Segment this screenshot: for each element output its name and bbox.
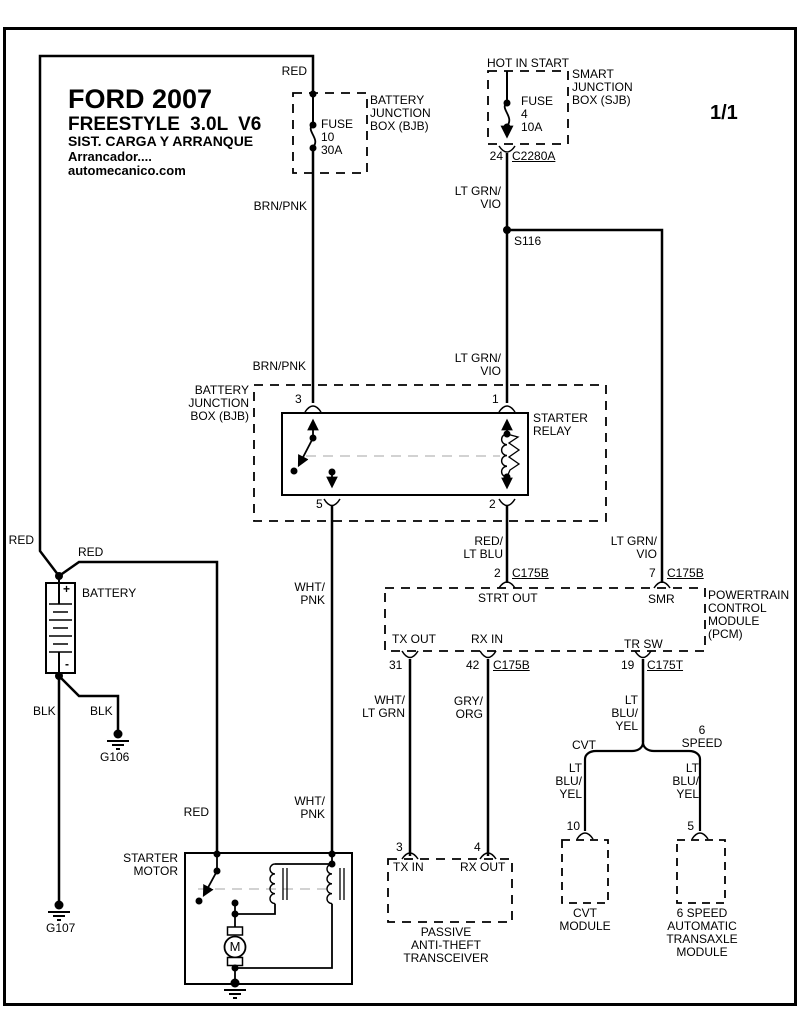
pcm-pin-19: 19 bbox=[621, 659, 634, 672]
wire-label-red-lt-blu: RED/ LT BLU bbox=[453, 535, 503, 561]
connector-cvt10-icon bbox=[577, 833, 593, 839]
splice-s116-label: S116 bbox=[514, 235, 541, 248]
connector-pin3-icon bbox=[305, 406, 321, 412]
pcm-pin-7-connector: C175B bbox=[667, 567, 704, 580]
g106-ground-icon bbox=[107, 730, 129, 750]
motor-brush-top-icon bbox=[228, 927, 243, 935]
pats-pin-4: 4 bbox=[474, 841, 481, 854]
sixspeed-module-box bbox=[677, 840, 725, 903]
connector-pin5-icon bbox=[324, 499, 340, 506]
wire-label-lt-grn-vio-mid: LT GRN/ VIO bbox=[451, 352, 501, 378]
pcm-pin-2: 2 bbox=[494, 567, 501, 580]
pcm-strt-out-label: STRT OUT bbox=[478, 592, 538, 605]
motor-brush-bottom-icon bbox=[228, 958, 243, 966]
bjb-fuse-box-label: BATTERY JUNCTION BOX (BJB) bbox=[370, 94, 431, 133]
starter-switch-icon bbox=[204, 871, 217, 895]
hot-in-start-label: HOT IN START bbox=[487, 57, 569, 70]
cvt-branch-label: CVT bbox=[572, 739, 596, 752]
connector-pcm31-icon bbox=[402, 651, 418, 658]
wire-lt-grn-vio bbox=[507, 153, 662, 583]
battery-symbol bbox=[46, 572, 75, 680]
bjb-fuse-label: FUSE 10 30A bbox=[321, 118, 353, 157]
wire-label-lt-blu-yel-6sp: LT BLU/ YEL bbox=[659, 762, 699, 801]
wire-label-wht-pnk-lower: WHT/ PNK bbox=[285, 795, 325, 821]
battery-plus-sign: + bbox=[63, 583, 70, 596]
title-line-1: FORD 2007 bbox=[68, 86, 212, 113]
g106-label: G106 bbox=[100, 751, 129, 764]
sixspeed-branch-label: 6 SPEED bbox=[678, 724, 726, 750]
pcm-rx-in-label: RX IN bbox=[471, 633, 503, 646]
page-number: 1/1 bbox=[710, 103, 738, 123]
g107-ground-icon bbox=[48, 901, 70, 921]
connector-pcm42-icon bbox=[480, 651, 496, 658]
bjb-relay-box bbox=[254, 385, 606, 521]
wiring-diagram-page: FORD 2007 FREESTYLE 3.0L V6 SIST. CARGA … bbox=[0, 0, 800, 1035]
sjb-pin-number: 24 bbox=[481, 150, 503, 163]
wire-label-brn-pnk-lower: BRN/PNK bbox=[246, 360, 306, 373]
pcm-pin-42: 42 bbox=[466, 659, 479, 672]
wire-label-wht-pnk-upper: WHT/ PNK bbox=[285, 581, 325, 607]
pcm-output-wires bbox=[410, 659, 643, 856]
title-line-5: automecanico.com bbox=[68, 164, 186, 178]
wire-label-red-starter: RED bbox=[179, 806, 209, 819]
solenoid-coil-right-icon bbox=[327, 864, 332, 904]
relay-switch-icon bbox=[299, 438, 313, 465]
wire-label-wht-lt-grn: WHT/ LT GRN bbox=[355, 694, 405, 720]
relay-resistor-icon bbox=[507, 434, 519, 477]
g107-label: G107 bbox=[46, 922, 75, 935]
pcm-tr-sw-label: TR SW bbox=[624, 638, 663, 651]
relay-pin-5: 5 bbox=[316, 498, 323, 511]
sixspeed-pin-5: 5 bbox=[682, 820, 694, 833]
wire-label-gry-org: GRY/ ORG bbox=[433, 695, 483, 721]
sjb-fuse-label: FUSE 4 10A bbox=[521, 95, 553, 134]
battery-label: BATTERY bbox=[82, 587, 136, 600]
cvt-pin-10: 10 bbox=[560, 820, 580, 833]
connector-pcm19-icon bbox=[635, 651, 651, 658]
splice-s116-dot bbox=[503, 226, 511, 234]
wire-label-red-batt-left: RED bbox=[4, 534, 34, 547]
sixspeed-module-label: 6 SPEED AUTOMATIC TRANSAXLE MODULE bbox=[652, 907, 752, 959]
wire-label-red-batt-right: RED bbox=[78, 546, 103, 559]
pcm-pin-42-connector: C175B bbox=[493, 659, 530, 672]
title-line-2: FREESTYLE 3.0L V6 bbox=[68, 115, 261, 134]
wire-label-brn-pnk-upper: BRN/PNK bbox=[247, 200, 307, 213]
starter-ground-icon bbox=[224, 990, 246, 998]
connector-pin1-icon bbox=[499, 406, 515, 412]
solenoid-coil-left-icon bbox=[270, 864, 275, 904]
sjb-box-label: SMART JUNCTION BOX (SJB) bbox=[572, 68, 633, 107]
sjb-connector-label: C2280A bbox=[512, 150, 555, 163]
wire-label-blk-g106: BLK bbox=[90, 705, 113, 718]
wire-label-lt-blu-yel-main: LT BLU/ YEL bbox=[598, 694, 638, 733]
cvt-module-box bbox=[562, 840, 608, 903]
pats-tx-in-label: TX IN bbox=[393, 861, 424, 874]
pcm-pin-7: 7 bbox=[649, 567, 656, 580]
relay-pin-2: 2 bbox=[489, 498, 496, 511]
pats-pin-3: 3 bbox=[396, 841, 403, 854]
starter-relay-box bbox=[282, 413, 528, 495]
battery-minus-sign: - bbox=[65, 658, 69, 671]
connector-pin2-icon bbox=[499, 499, 515, 506]
relay-coil-icon bbox=[502, 434, 507, 477]
cvt-module-label: CVT MODULE bbox=[545, 907, 625, 933]
wire-label-lt-grn-vio-top: LT GRN/ VIO bbox=[451, 185, 501, 211]
pats-name-label: PASSIVE ANTI-THEFT TRANSCEIVER bbox=[386, 926, 506, 965]
pcm-pin-2-connector: C175B bbox=[512, 567, 549, 580]
starter-motor-box bbox=[185, 851, 352, 999]
title-line-4: Arrancador.... bbox=[68, 150, 152, 164]
wire-label-blk-g107: BLK bbox=[33, 705, 56, 718]
relay-pin-1: 1 bbox=[492, 393, 499, 406]
pcm-name-label: POWERTRAIN CONTROL MODULE (PCM) bbox=[708, 589, 789, 641]
relay-bjb-box-label: BATTERY JUNCTION BOX (BJB) bbox=[179, 384, 249, 423]
pcm-smr-label: SMR bbox=[648, 593, 675, 606]
pcm-pin-19-connector: C175T bbox=[647, 659, 683, 672]
wire-label-lt-blu-yel-cvt: LT BLU/ YEL bbox=[542, 762, 582, 801]
pcm-tx-out-label: TX OUT bbox=[392, 633, 436, 646]
relay-pin-3: 3 bbox=[295, 393, 302, 406]
motor-m-label: M bbox=[227, 940, 243, 953]
starter-relay-label: STARTER RELAY bbox=[533, 412, 588, 438]
title-line-3: SIST. CARGA Y ARRANQUE bbox=[68, 134, 253, 149]
pcm-pin-31: 31 bbox=[389, 659, 402, 672]
starter-motor-label: STARTER MOTOR bbox=[108, 852, 178, 878]
wire-label-red-top: RED bbox=[277, 65, 307, 78]
pats-rx-out-label: RX OUT bbox=[460, 861, 505, 874]
wire-label-lt-grn-vio-pcm: LT GRN/ VIO bbox=[607, 535, 657, 561]
connector-6sp5-icon bbox=[692, 833, 708, 839]
